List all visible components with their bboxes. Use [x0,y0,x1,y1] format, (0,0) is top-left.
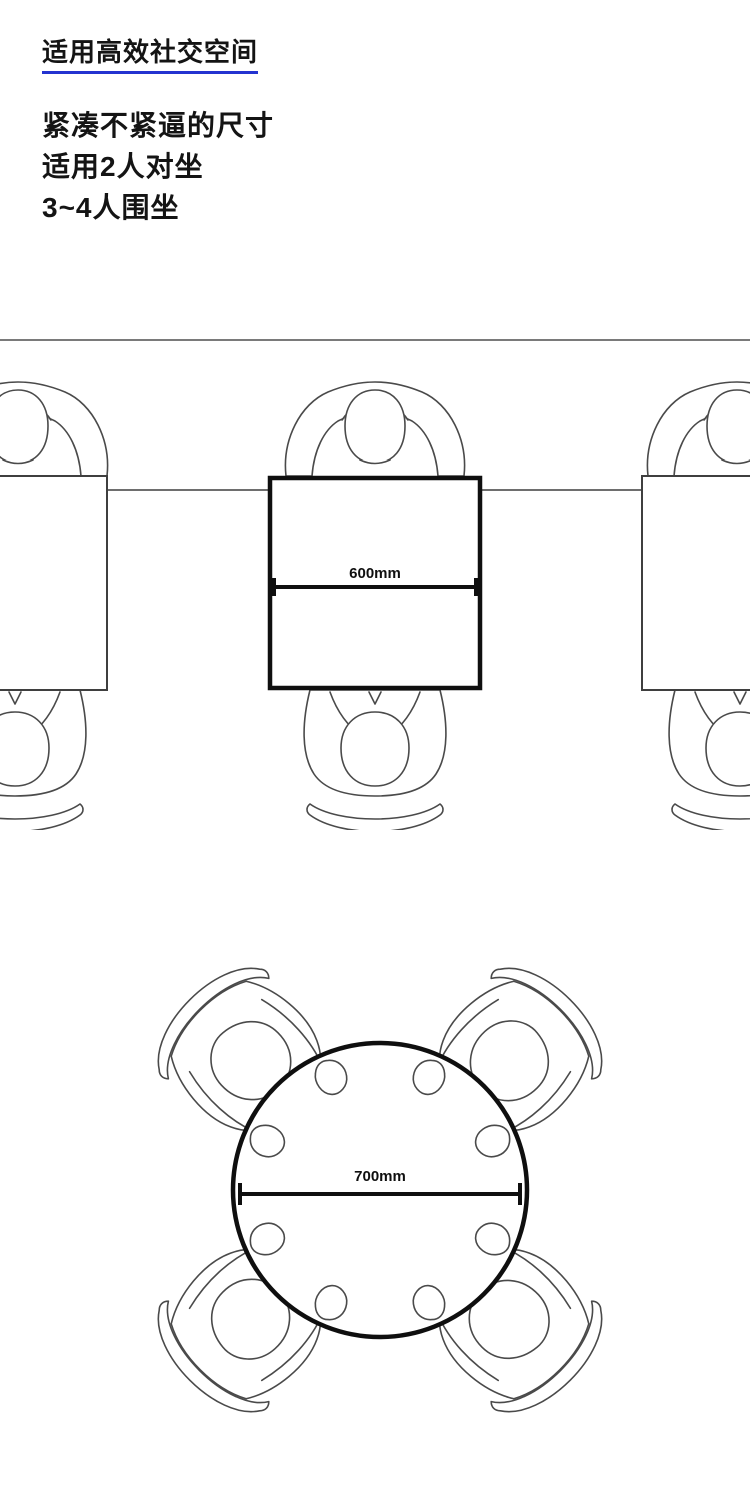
infographic-page: 适用高效社交空间 紧凑不紧逼的尺寸 适用2人对坐 3~4人围坐 [0,0,750,1500]
side-table-left [0,476,107,690]
person-bottom-left-icon [0,690,86,830]
person-bottom-right-icon [669,690,750,830]
person-top-right-icon [647,382,750,476]
round-table-diagram: 700mm [0,920,750,1480]
square-table-diagram: 600mm [0,330,750,830]
dimension-label-600: 600mm [349,565,401,582]
round-table [233,1043,527,1337]
subtitle-line-2: 适用2人对坐 [42,146,274,187]
subtitle-line-1: 紧凑不紧逼的尺寸 [42,105,274,146]
person-top-left-icon [0,382,108,476]
header: 适用高效社交空间 紧凑不紧逼的尺寸 适用2人对坐 3~4人围坐 [42,38,274,228]
subtitle-line-3: 3~4人围坐 [42,187,274,228]
dimension-label-700: 700mm [354,1168,406,1185]
person-top-center-icon [285,382,464,476]
page-title: 适用高效社交空间 [42,38,258,74]
square-table [270,478,480,688]
person-bottom-center-icon [304,690,446,830]
side-table-right [642,476,750,690]
subtitle: 紧凑不紧逼的尺寸 适用2人对坐 3~4人围坐 [42,105,274,228]
